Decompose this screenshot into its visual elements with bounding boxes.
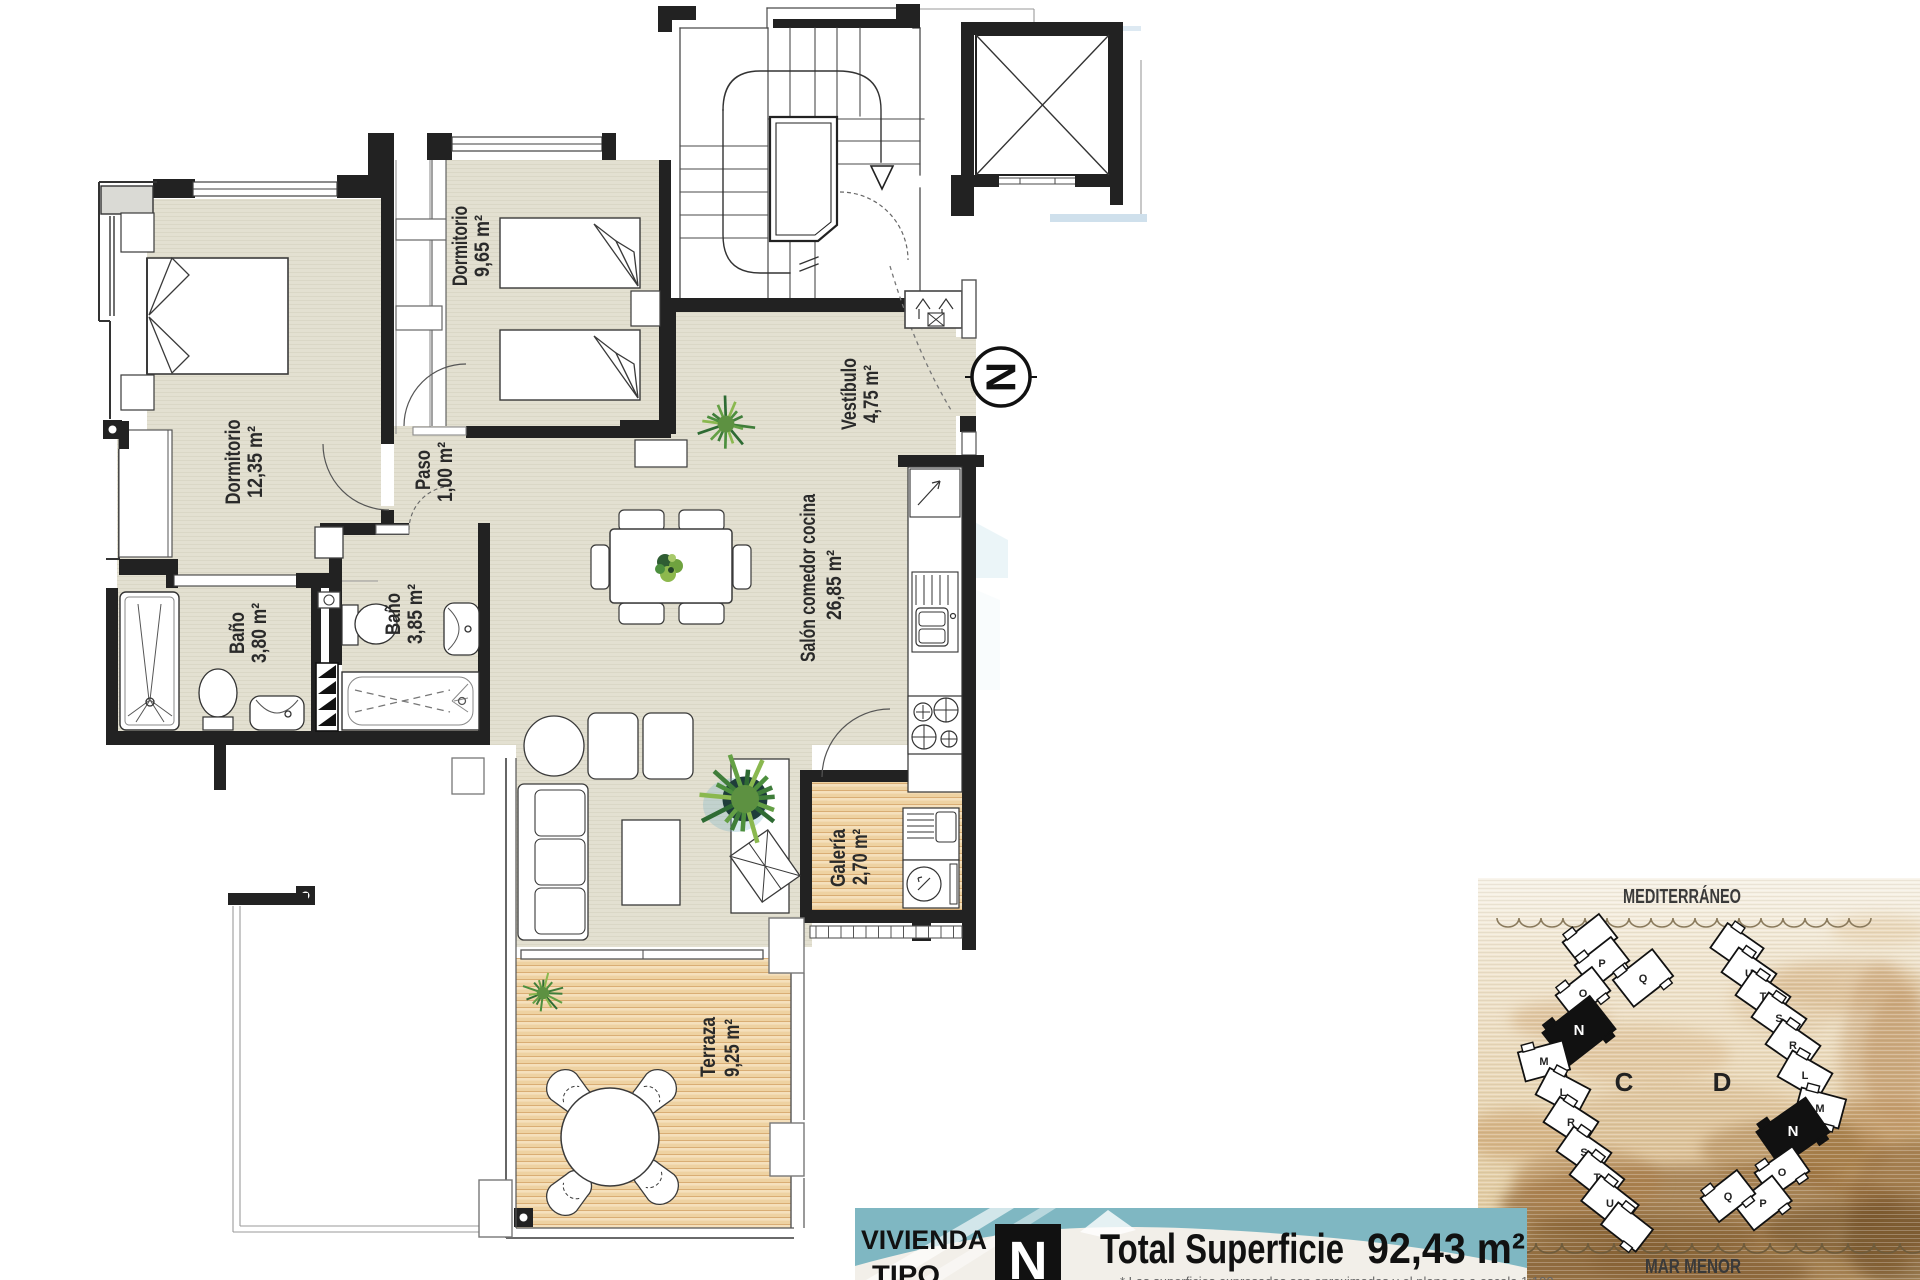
svg-text:TIPO: TIPO — [872, 1260, 940, 1280]
svg-text:C: C — [1615, 1067, 1634, 1097]
svg-text:4,75 m²: 4,75 m² — [860, 365, 883, 423]
svg-text:Dormitorio: Dormitorio — [222, 420, 245, 505]
svg-text:Paso: Paso — [412, 450, 435, 490]
svg-text:P: P — [1759, 1198, 1766, 1210]
svg-text:Baño: Baño — [226, 612, 249, 654]
svg-text:N: N — [1574, 1022, 1585, 1039]
svg-text:3,80 m²: 3,80 m² — [248, 603, 271, 663]
svg-text:2,70 m²: 2,70 m² — [849, 829, 872, 885]
svg-text:M: M — [1539, 1056, 1548, 1068]
svg-text:9,65 m²: 9,65 m² — [471, 215, 494, 277]
svg-text:Baño: Baño — [382, 593, 405, 635]
svg-text:1,00 m²: 1,00 m² — [434, 442, 457, 502]
svg-text:Dormitorio: Dormitorio — [449, 206, 472, 286]
svg-text:Salón comedor cocina: Salón comedor cocina — [797, 494, 820, 662]
svg-text:Galería: Galería — [827, 829, 850, 887]
svg-text:92,43 m²: 92,43 m² — [1367, 1225, 1525, 1273]
svg-text:* Las superficies expresadas s: * Las superficies expresadas son aproxim… — [1120, 1274, 1554, 1280]
svg-text:12,35 m²: 12,35 m² — [244, 426, 267, 498]
svg-text:P: P — [1598, 958, 1605, 970]
svg-text:N: N — [1009, 1231, 1048, 1280]
svg-text:MEDITERRÁNEO: MEDITERRÁNEO — [1623, 885, 1741, 908]
svg-text:MAR MENOR: MAR MENOR — [1645, 1256, 1741, 1278]
svg-text:9,25 m²: 9,25 m² — [721, 1019, 744, 1077]
svg-text:Terraza: Terraza — [697, 1017, 720, 1077]
svg-text:Q: Q — [1639, 973, 1648, 985]
svg-text:O: O — [1778, 1167, 1787, 1179]
svg-text:26,85 m²: 26,85 m² — [823, 550, 846, 620]
svg-text:Vestíbulo: Vestíbulo — [838, 358, 861, 430]
svg-text:N: N — [978, 362, 1025, 392]
svg-text:Q: Q — [1724, 1191, 1733, 1203]
svg-text:Total Superficie: Total Superficie — [1100, 1225, 1344, 1272]
svg-text:N: N — [1788, 1123, 1799, 1140]
svg-text:L: L — [1802, 1070, 1809, 1082]
svg-text:3,85 m²: 3,85 m² — [404, 584, 427, 644]
svg-text:VIVIENDA: VIVIENDA — [861, 1225, 987, 1255]
svg-text:D: D — [1713, 1067, 1732, 1097]
